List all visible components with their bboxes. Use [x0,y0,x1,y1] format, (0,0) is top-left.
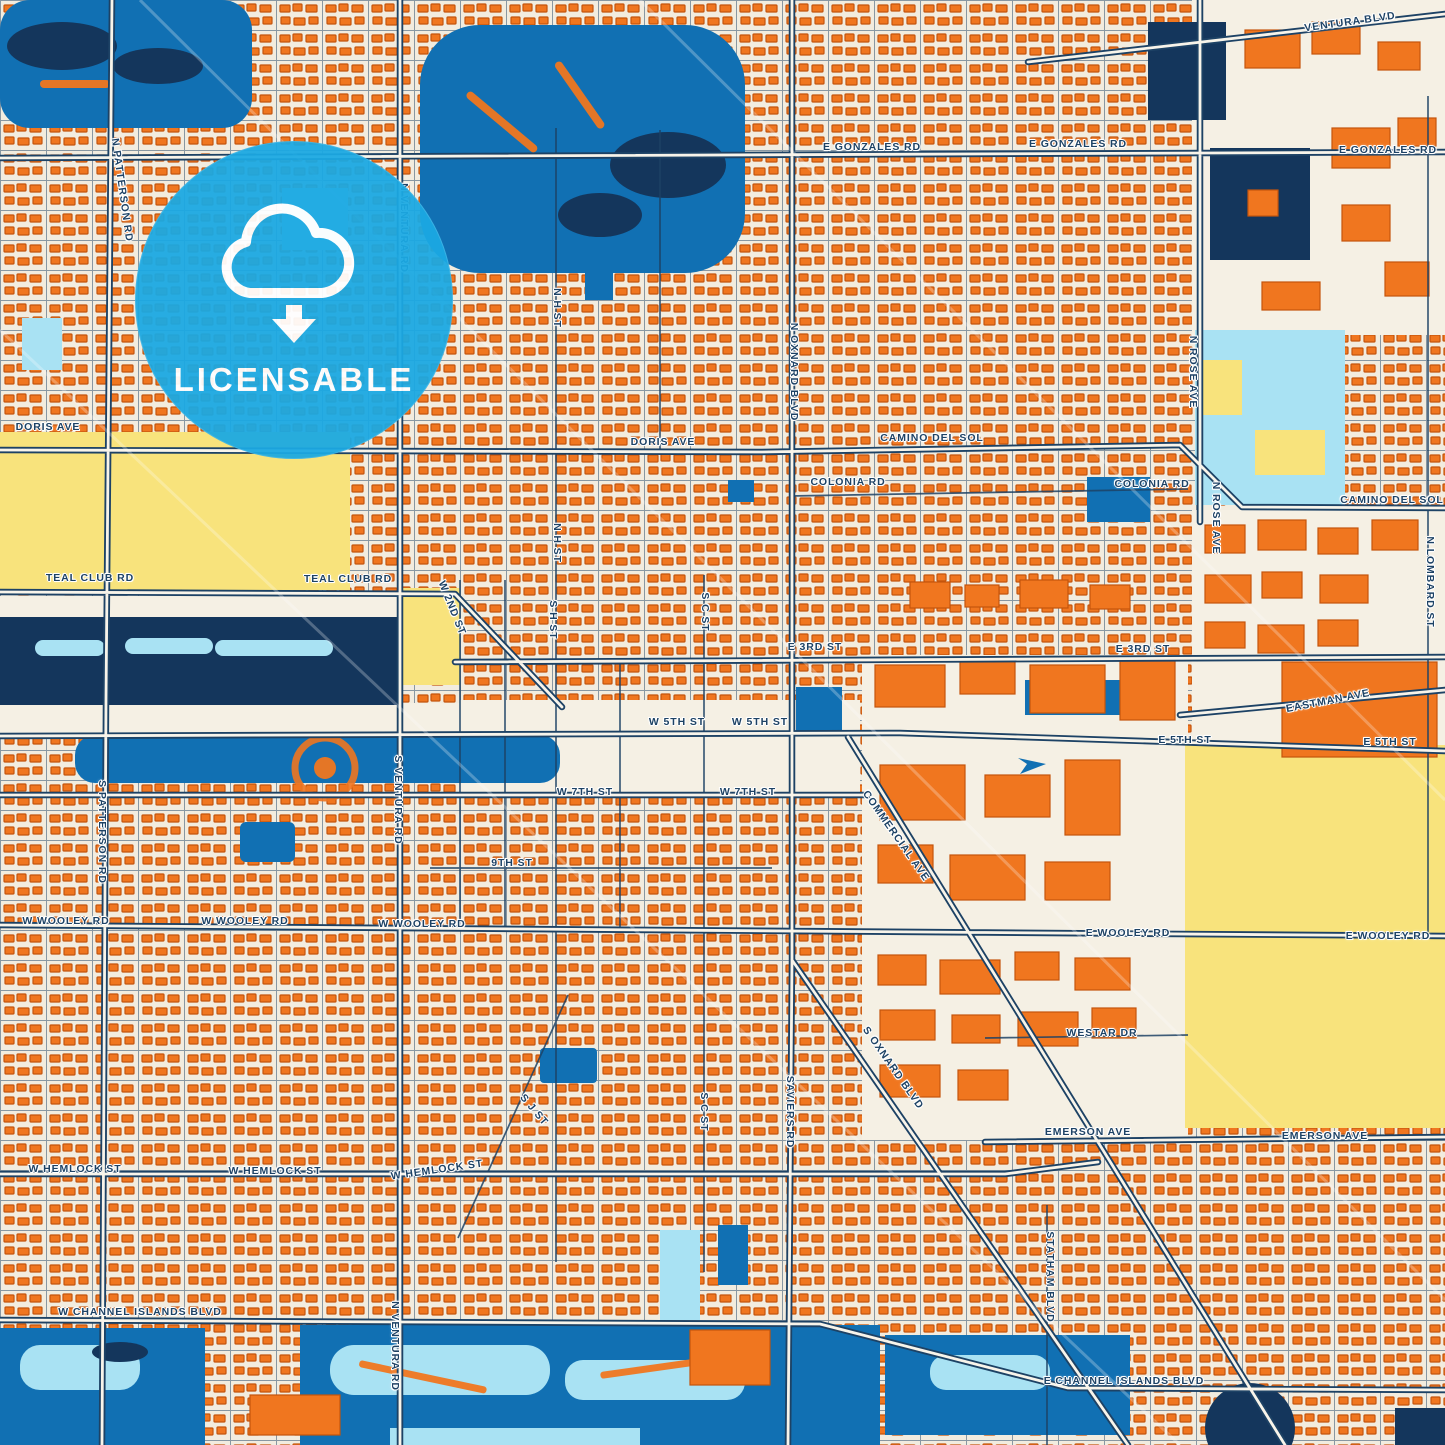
map-preview: N PATTERSON RDVENTURA BLVDE GONZALES RDE… [0,0,1445,1445]
cloud-download-icon [194,201,394,351]
badge-label: LICENSABLE [174,361,415,399]
licensable-badge: LICENSABLE [135,141,453,459]
